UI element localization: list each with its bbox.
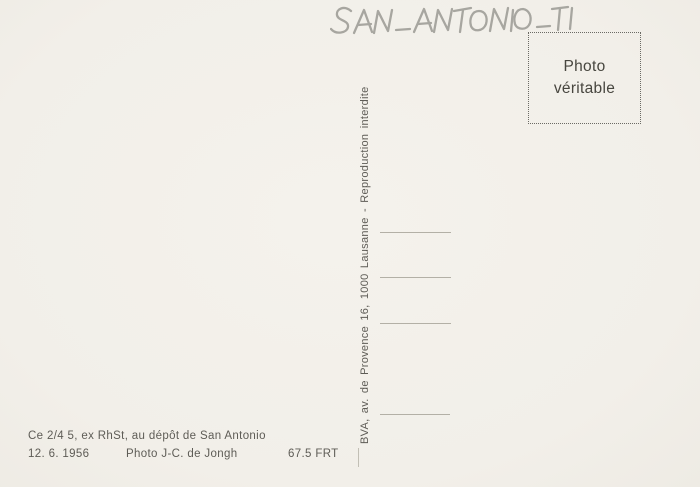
caption-date: 12. 6. 1956 [28, 448, 89, 460]
caption-photographer: Photo J-C. de Jongh [126, 448, 238, 460]
caption-reference: 67.5 FRT [288, 448, 339, 460]
address-ruled-line [380, 323, 451, 324]
photo-stamp-line2: véritable [554, 78, 615, 100]
postcard-back: Photo véritable BVA, av. de Provence 16,… [0, 0, 700, 487]
address-ruled-line [380, 232, 451, 233]
caption-row: 12. 6. 1956 Photo J-C. de Jongh 67.5 FRT [0, 448, 700, 464]
address-ruled-line [380, 277, 451, 278]
address-ruled-line [380, 414, 450, 415]
photo-veritable-stamp: Photo véritable [528, 32, 641, 124]
caption-description: Ce 2/4 5, ex RhSt, au dépôt de San Anton… [28, 430, 266, 442]
photo-stamp-line1: Photo [563, 56, 605, 78]
publisher-imprint-vertical: BVA, av. de Provence 16, 1000 Lausanne -… [358, 42, 372, 444]
